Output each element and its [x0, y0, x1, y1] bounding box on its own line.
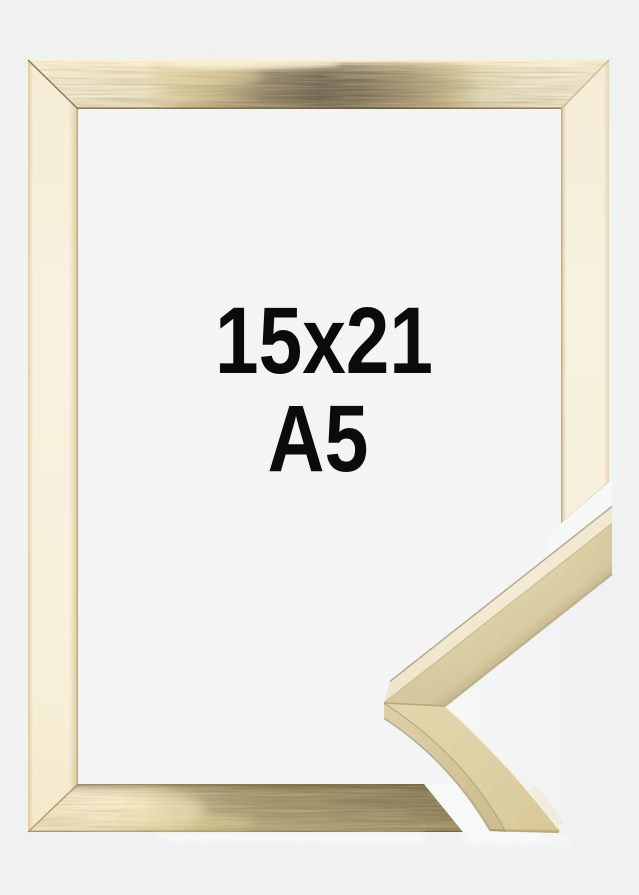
svg-text:A5: A5 [268, 386, 369, 492]
svg-text:15x21: 15x21 [215, 288, 433, 394]
